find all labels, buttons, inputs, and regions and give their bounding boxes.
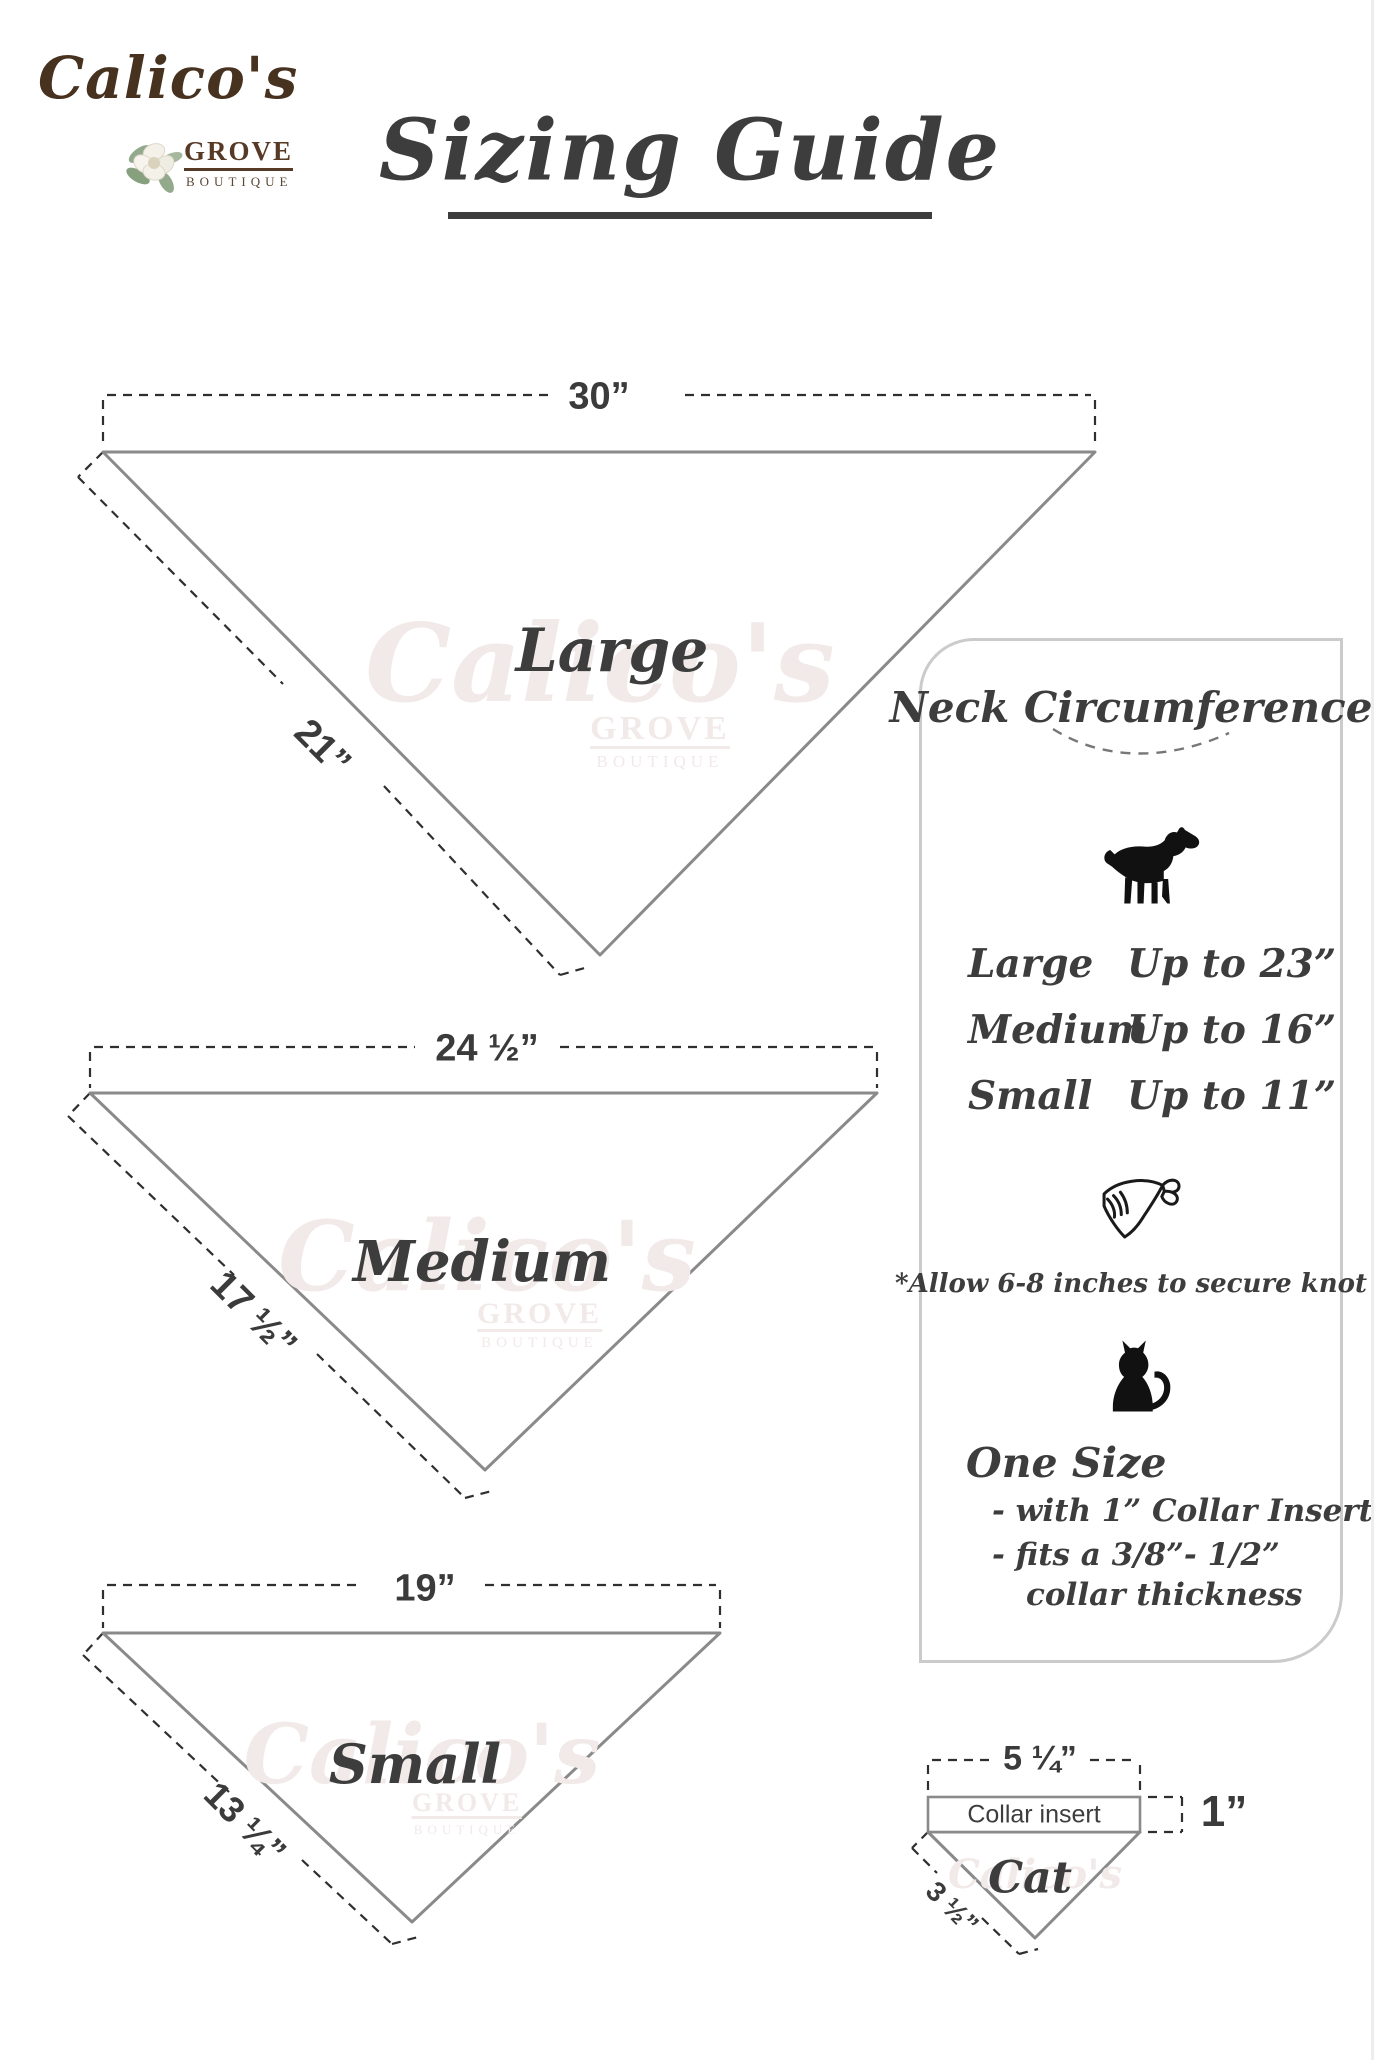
knot-note: *Allow 6-8 inches to secure knot xyxy=(895,1269,1367,1299)
cat-collar-height-bracket xyxy=(1148,1797,1182,1832)
page-title: Sizing Guide xyxy=(379,101,1001,200)
page-edge xyxy=(1371,0,1374,2060)
one-size-detail-2: - fits a 3/8”- 1/2” xyxy=(992,1537,1280,1573)
cat-icon xyxy=(1099,1337,1177,1415)
row-small-size: Small xyxy=(968,1073,1092,1119)
title-underline xyxy=(448,212,932,219)
bandana-icon xyxy=(1092,1167,1204,1251)
one-size-detail-1: - with 1” Collar Insert xyxy=(992,1493,1373,1529)
cat-bandana-diagram xyxy=(890,1730,1290,2000)
small-side-dimension-tick-top xyxy=(83,1633,103,1655)
medium-size-label: Medium xyxy=(353,1229,611,1295)
large-side-dimension-tick-top xyxy=(78,452,103,477)
brand-boutique: BOUTIQUE xyxy=(186,174,292,190)
cat-side-dimension-tick-top xyxy=(912,1832,928,1848)
flower-icon xyxy=(122,132,186,192)
row-medium-value: Up to 16” xyxy=(1127,1007,1336,1053)
large-size-label: Large xyxy=(516,616,709,686)
neck-circumference-panel: Neck Circumference Large Up to 23” Mediu… xyxy=(919,638,1343,1663)
medium-top-dimension-label: 24 ½” xyxy=(435,1028,539,1071)
cat-size-label: Cat xyxy=(988,1853,1072,1904)
small-size-label: Small xyxy=(329,1732,501,1796)
one-size-title: One Size xyxy=(966,1439,1166,1487)
one-size-detail-3: collar thickness xyxy=(1026,1577,1302,1613)
brand-grove: GROVE xyxy=(184,136,293,171)
medium-side-dimension-tick-bottom xyxy=(465,1491,492,1498)
large-top-dimension-label: 30” xyxy=(568,376,629,419)
row-large-value: Up to 23” xyxy=(1127,941,1336,987)
brand-logo: Calico's GROVE BOUTIQUE xyxy=(38,48,318,208)
cat-side-dimension-tick-bottom xyxy=(1019,1949,1038,1954)
cat-top-dimension-label: 5 ¼” xyxy=(1003,1740,1077,1779)
large-side-dimension-tick-bottom xyxy=(560,967,588,975)
small-side-dimension-tick-bottom xyxy=(392,1937,418,1944)
cat-collar-height-label: 1” xyxy=(1201,1787,1247,1837)
medium-side-dimension-tick-top xyxy=(68,1093,90,1116)
row-medium-size: Medium xyxy=(968,1007,1148,1053)
brand-name: Calico's xyxy=(38,44,298,112)
row-small-value: Up to 11” xyxy=(1127,1073,1336,1119)
underline-arc xyxy=(1047,723,1237,765)
row-large-size: Large xyxy=(968,941,1093,987)
dog-icon xyxy=(1098,825,1212,911)
collar-insert-label: Collar insert xyxy=(967,1801,1100,1830)
small-top-dimension-label: 19” xyxy=(394,1568,455,1611)
